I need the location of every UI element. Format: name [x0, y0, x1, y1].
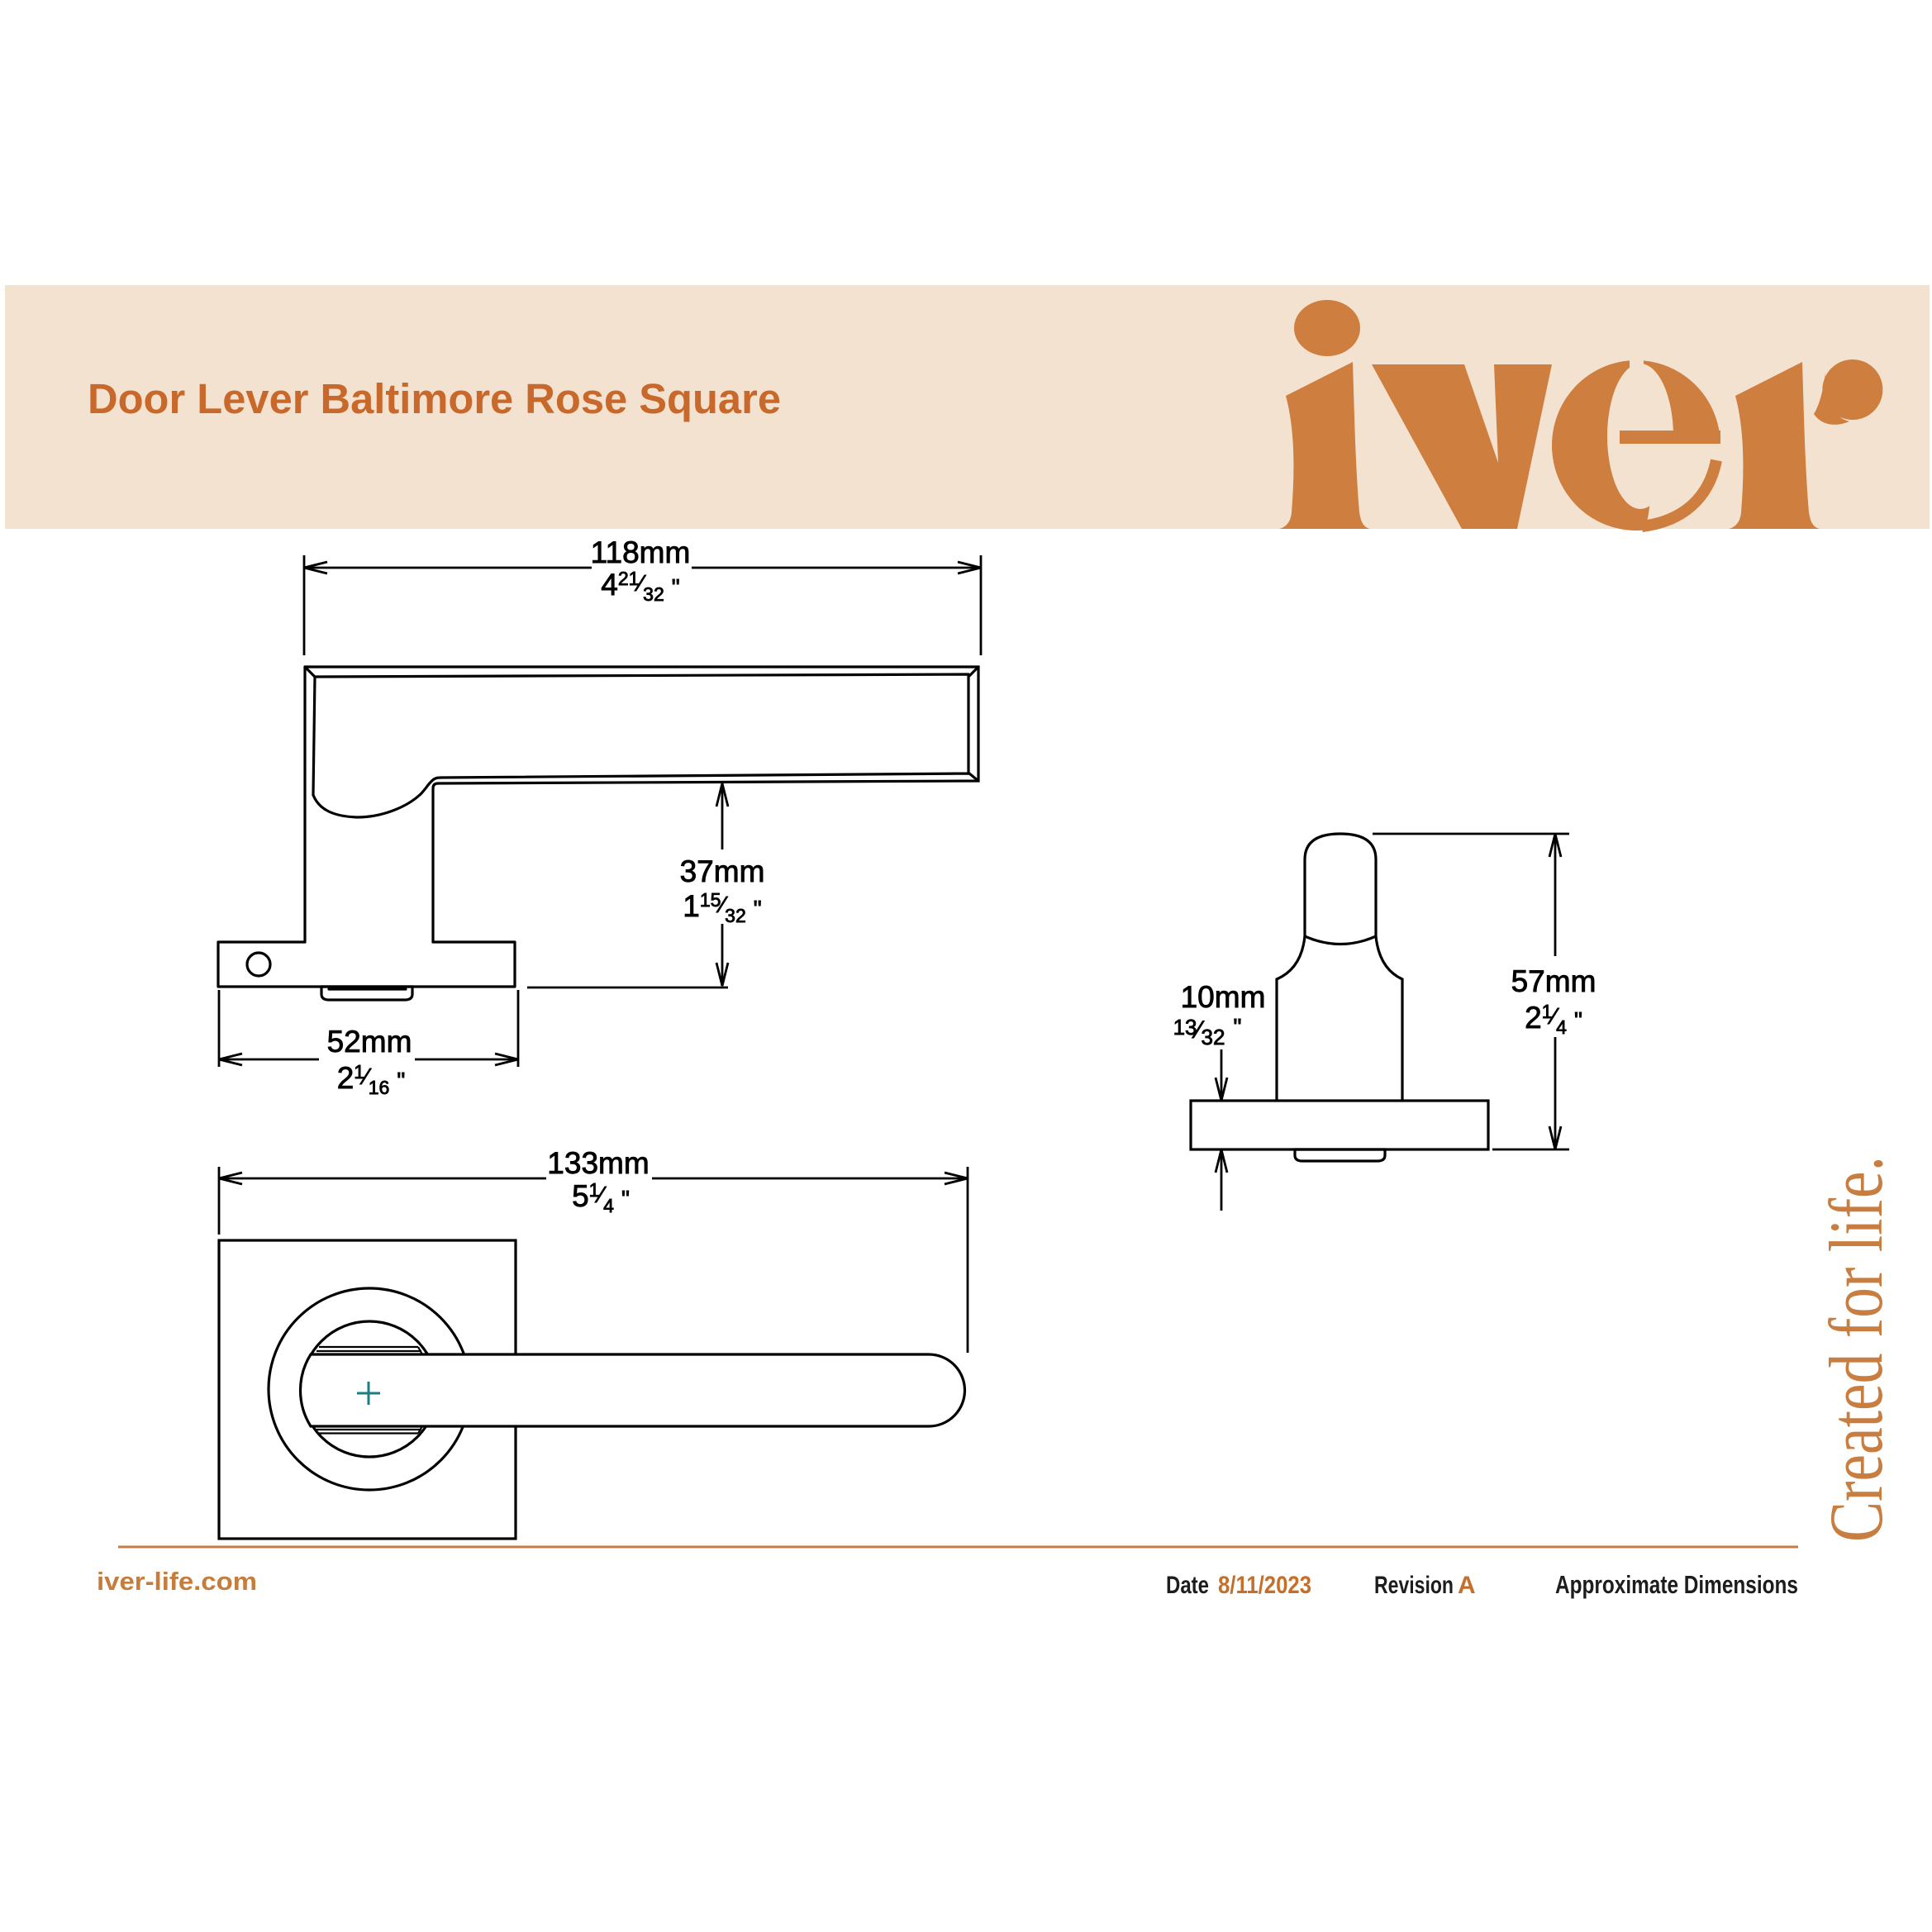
- svg-text:115⁄32": 115⁄32": [683, 889, 761, 926]
- svg-text:8/11/2023: 8/11/2023: [1218, 1572, 1311, 1599]
- svg-text:13⁄32": 13⁄32": [1173, 1014, 1242, 1049]
- svg-text:iver-life.com: iver-life.com: [97, 1567, 257, 1596]
- svg-text:Approximate Dimensions: Approximate Dimensions: [1555, 1570, 1798, 1599]
- svg-text:Created for life.: Created for life.: [1814, 1156, 1898, 1542]
- svg-text:133mm: 133mm: [547, 1146, 649, 1180]
- svg-text:37mm: 37mm: [680, 854, 765, 888]
- svg-text:Revision: Revision: [1374, 1572, 1454, 1599]
- svg-text:A: A: [1458, 1572, 1476, 1599]
- svg-text:Date: Date: [1166, 1572, 1209, 1599]
- svg-text:21⁄16": 21⁄16": [337, 1061, 406, 1098]
- svg-text:118mm: 118mm: [591, 535, 691, 569]
- svg-text:10mm: 10mm: [1181, 980, 1266, 1014]
- svg-text:51⁄4": 51⁄4": [572, 1179, 630, 1216]
- svg-text:57mm: 57mm: [1511, 964, 1597, 998]
- svg-text:52mm: 52mm: [327, 1025, 412, 1059]
- svg-text:Door Lever Baltimore Rose Squa: Door Lever Baltimore Rose Square: [88, 375, 781, 422]
- svg-text:21⁄4": 21⁄4": [1525, 1001, 1582, 1038]
- svg-text:421⁄32": 421⁄32": [601, 568, 679, 605]
